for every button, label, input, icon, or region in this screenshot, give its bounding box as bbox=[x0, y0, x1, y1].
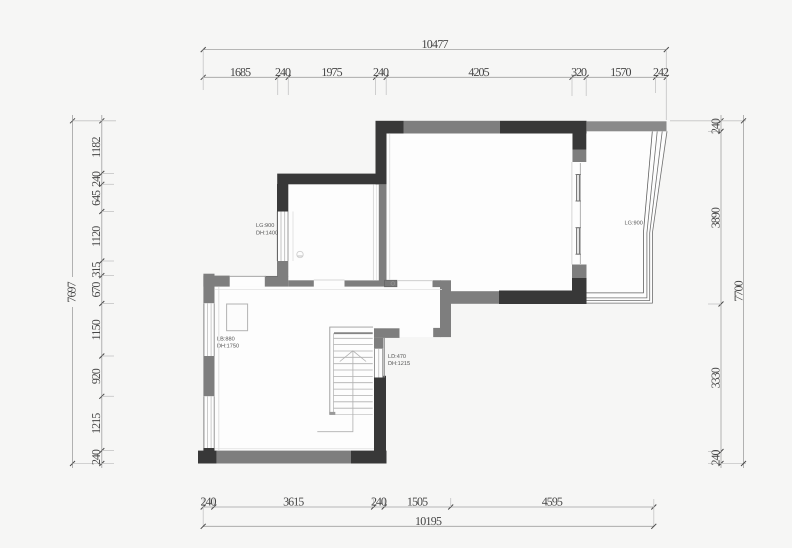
svg-text:670: 670 bbox=[89, 282, 103, 298]
svg-text:1182: 1182 bbox=[89, 137, 103, 158]
svg-text:920: 920 bbox=[89, 368, 103, 384]
svg-text:240: 240 bbox=[709, 118, 723, 134]
svg-text:DH:1400: DH:1400 bbox=[256, 230, 278, 236]
svg-text:645: 645 bbox=[89, 190, 103, 206]
svg-text:3890: 3890 bbox=[709, 207, 723, 228]
svg-text:240: 240 bbox=[201, 495, 217, 509]
svg-text:240: 240 bbox=[371, 495, 387, 509]
svg-text:1150: 1150 bbox=[89, 319, 103, 340]
svg-text:315: 315 bbox=[89, 262, 103, 278]
svg-text:DH:1215: DH:1215 bbox=[388, 361, 410, 367]
svg-text:1505: 1505 bbox=[407, 495, 428, 509]
svg-text:10477: 10477 bbox=[422, 37, 449, 51]
svg-text:LB:880: LB:880 bbox=[217, 337, 235, 343]
svg-text:240: 240 bbox=[373, 65, 389, 79]
svg-text:242: 242 bbox=[653, 65, 669, 79]
svg-text:320: 320 bbox=[571, 65, 587, 79]
svg-text:DH:1750: DH:1750 bbox=[217, 344, 239, 350]
svg-text:4205: 4205 bbox=[468, 65, 489, 79]
svg-text:1120: 1120 bbox=[89, 226, 103, 247]
svg-text:LG:900: LG:900 bbox=[256, 223, 274, 229]
svg-text:3615: 3615 bbox=[283, 495, 304, 509]
svg-text:1975: 1975 bbox=[321, 65, 342, 79]
svg-text:240: 240 bbox=[89, 171, 103, 187]
svg-text:1215: 1215 bbox=[89, 413, 103, 434]
svg-text:LG:900: LG:900 bbox=[625, 220, 643, 226]
svg-text:240: 240 bbox=[275, 65, 291, 79]
svg-text:1570: 1570 bbox=[610, 65, 631, 79]
svg-text:7700: 7700 bbox=[731, 280, 745, 301]
svg-text:240: 240 bbox=[89, 449, 103, 465]
svg-text:240: 240 bbox=[709, 450, 723, 466]
svg-text:7697: 7697 bbox=[65, 281, 79, 302]
svg-text:4595: 4595 bbox=[542, 495, 563, 509]
svg-text:1685: 1685 bbox=[230, 65, 251, 79]
svg-text:3330: 3330 bbox=[709, 367, 723, 388]
svg-text:10195: 10195 bbox=[415, 514, 442, 528]
svg-text:LD:470: LD:470 bbox=[388, 354, 406, 360]
